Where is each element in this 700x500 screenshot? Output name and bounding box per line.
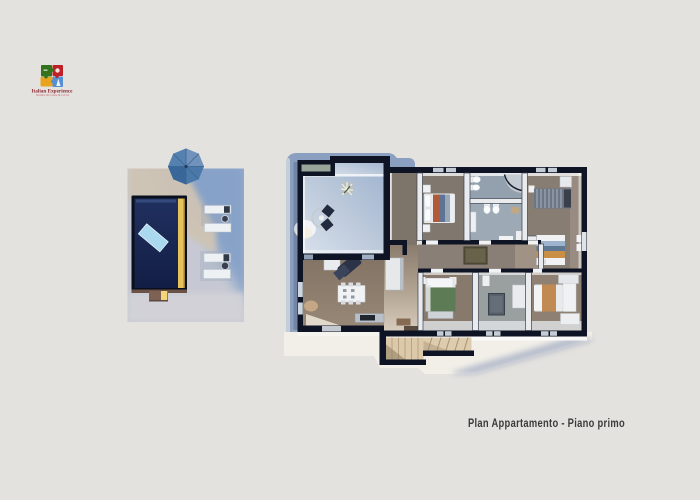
svg-text:Plan Appartamento - Piano prim: Plan Appartamento - Piano primo: [468, 416, 625, 430]
